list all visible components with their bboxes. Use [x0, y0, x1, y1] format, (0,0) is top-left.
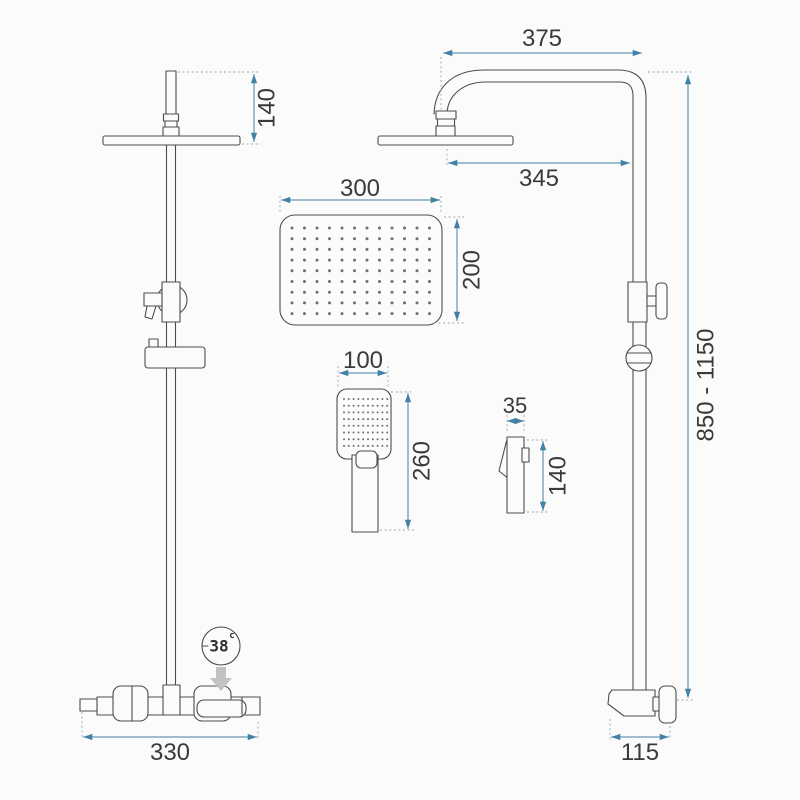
nozzle-grid [291, 227, 432, 316]
temp-badge: 38 c [202, 627, 240, 665]
riser-pipe-front [167, 145, 176, 685]
hand-shower-button [356, 451, 377, 468]
dim-label-wall-offset: 115 [621, 739, 659, 766]
shower-set-dimension-drawing: 38 c [0, 0, 800, 800]
technical-drawing-page: 38 c [0, 0, 800, 800]
hose-ring [626, 345, 652, 371]
hand-shower-front-view [337, 389, 391, 532]
diverter-slider-front [144, 282, 187, 322]
hand-nozzle-grid [343, 398, 388, 447]
thermostatic-mixer [80, 685, 260, 721]
temp-value: 38 [209, 637, 228, 656]
hand-shower-side-view [499, 437, 529, 513]
wall-elbow [608, 686, 676, 723]
dim-label-hand-length: 260 [409, 441, 436, 481]
dim-label-column-height: 850 - 1150 [693, 329, 720, 442]
rain-head-top-view [280, 215, 442, 325]
rain-head-side [378, 136, 513, 145]
rain-head-front [103, 71, 240, 145]
dim-label-hand-side-length: 140 [545, 456, 572, 496]
dim-label-hand-width: 100 [343, 347, 383, 374]
dim-label-rain-head-depth: 200 [459, 250, 486, 290]
dim-label-head-drop: 140 [254, 88, 281, 128]
dim-label-hand-depth: 35 [503, 393, 527, 418]
slider-bracket-side [628, 282, 667, 322]
dim-label-mixer-width: 330 [150, 739, 190, 766]
dim-label-arm-reach: 375 [522, 25, 562, 52]
dimension-lines [83, 53, 688, 737]
front-view: 38 c [80, 71, 260, 721]
dim-label-head-to-column: 345 [519, 165, 559, 192]
dim-label-rain-head-width: 300 [340, 175, 380, 202]
temp-unit: c [229, 631, 234, 641]
